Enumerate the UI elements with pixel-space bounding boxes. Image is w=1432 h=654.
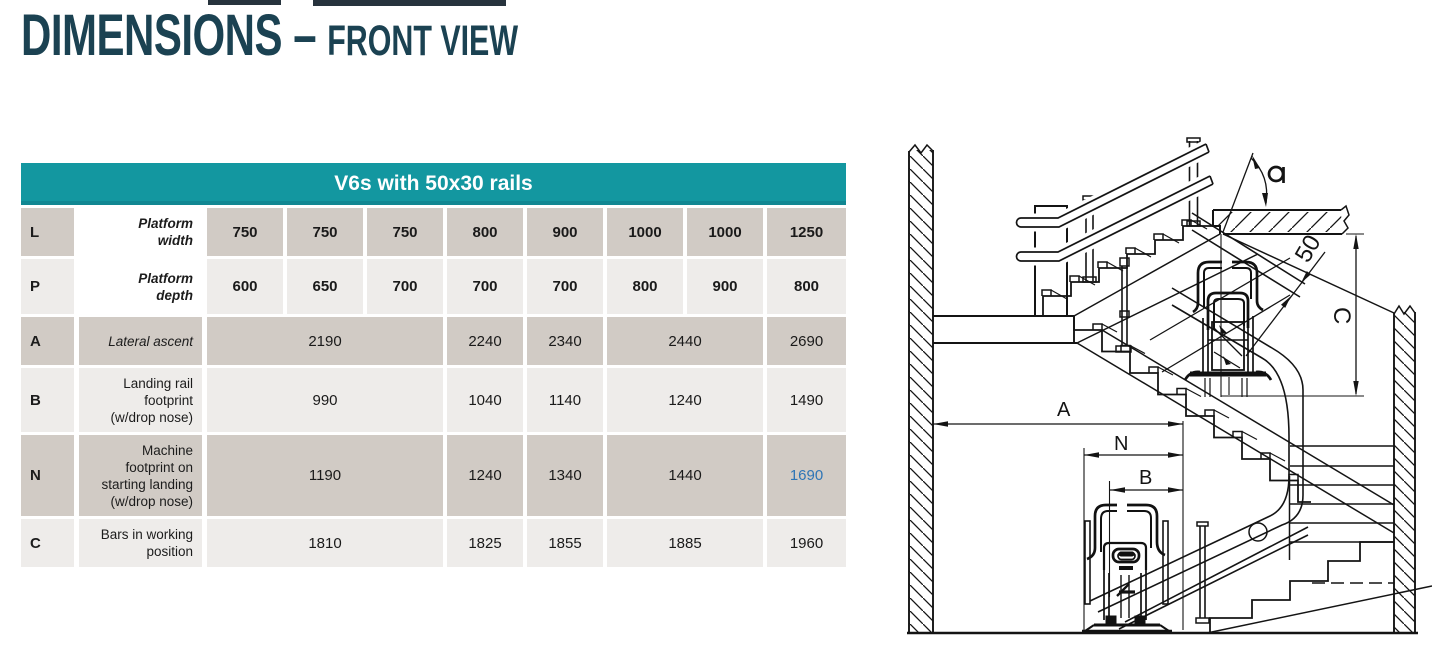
svg-text:C: C	[1328, 307, 1355, 324]
svg-text:N: N	[1114, 433, 1128, 455]
svg-text:A: A	[1057, 399, 1071, 421]
svg-text:50: 50	[1290, 230, 1327, 267]
svg-text:B: B	[1139, 467, 1152, 489]
